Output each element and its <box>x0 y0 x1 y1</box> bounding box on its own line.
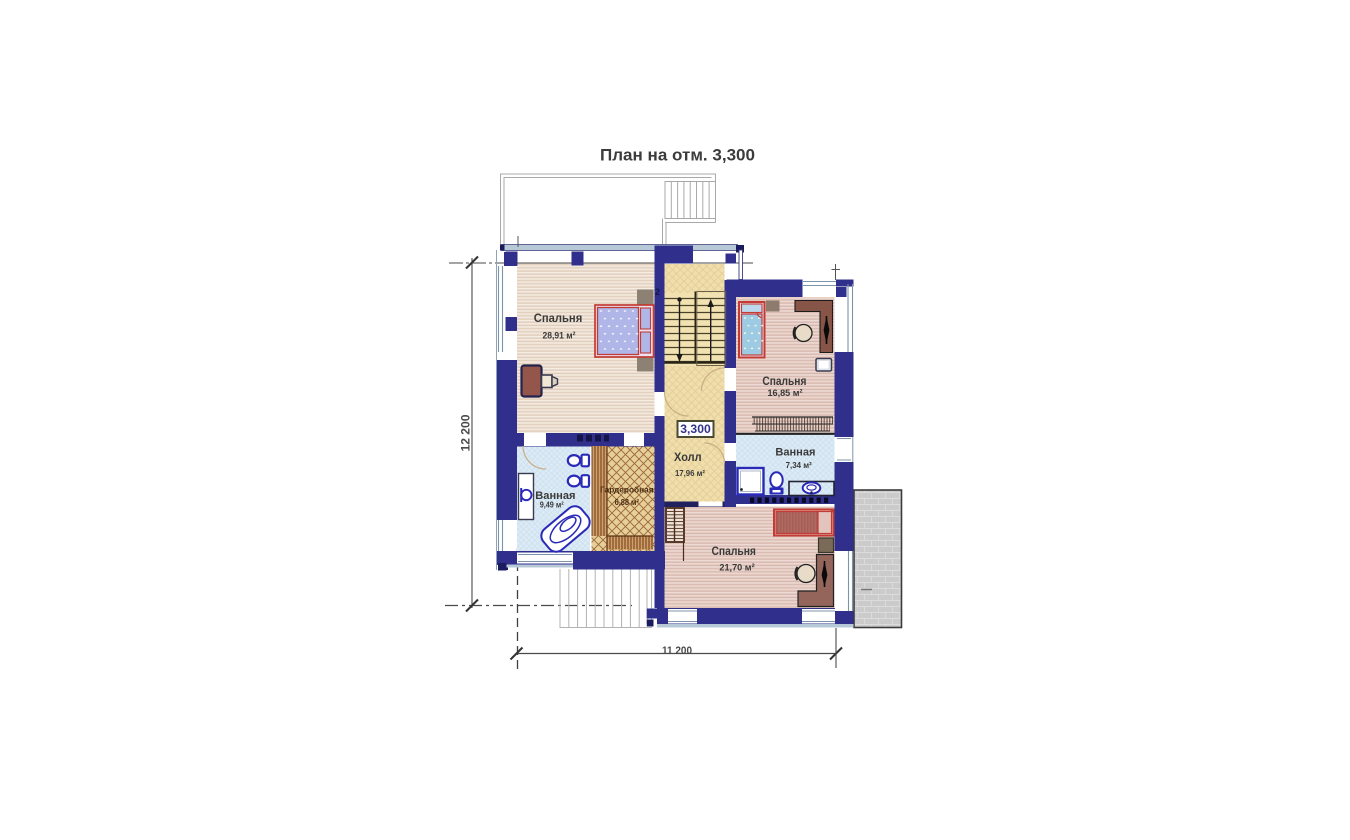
svg-text:Гардеробная: Гардеробная <box>600 485 654 495</box>
svg-text:11 200: 11 200 <box>662 645 692 657</box>
svg-text:2: 2 <box>655 287 660 297</box>
svg-text:Ванная: Ванная <box>775 447 815 459</box>
svg-text:9,49 м²: 9,49 м² <box>540 501 564 510</box>
svg-text:Спальня: Спальня <box>534 311 583 325</box>
svg-text:17,96 м²: 17,96 м² <box>675 468 705 478</box>
svg-text:6,88 м²: 6,88 м² <box>615 498 640 507</box>
svg-text:Холл: Холл <box>674 450 702 464</box>
svg-text:3,300: 3,300 <box>680 422 711 436</box>
svg-text:Спальня: Спальня <box>762 374 806 388</box>
svg-text:Спальня: Спальня <box>711 544 756 558</box>
svg-text:28,91 м²: 28,91 м² <box>543 331 576 342</box>
svg-text:План на отм. 3,300: План на отм. 3,300 <box>600 147 755 165</box>
svg-text:21,70 м²: 21,70 м² <box>719 563 754 574</box>
svg-text:7,34 м²: 7,34 м² <box>786 460 812 470</box>
svg-text:16,85 м²: 16,85 м² <box>768 388 803 399</box>
svg-text:12 200: 12 200 <box>461 415 473 452</box>
